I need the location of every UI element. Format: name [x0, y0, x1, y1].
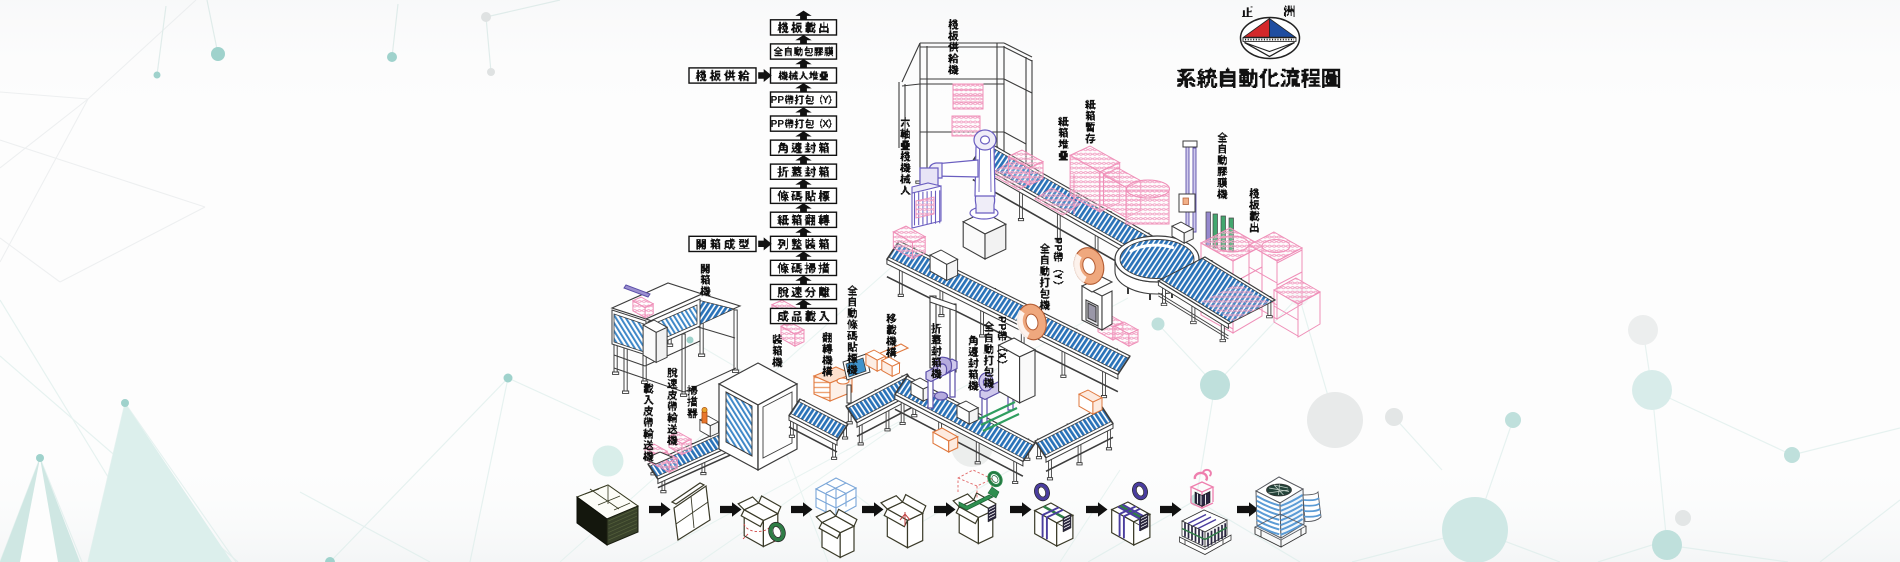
svg-text:P: P [777, 119, 784, 130]
svg-text:Y: Y [822, 95, 829, 106]
svg-text:P: P [777, 95, 784, 106]
svg-text:X: X [822, 119, 829, 130]
